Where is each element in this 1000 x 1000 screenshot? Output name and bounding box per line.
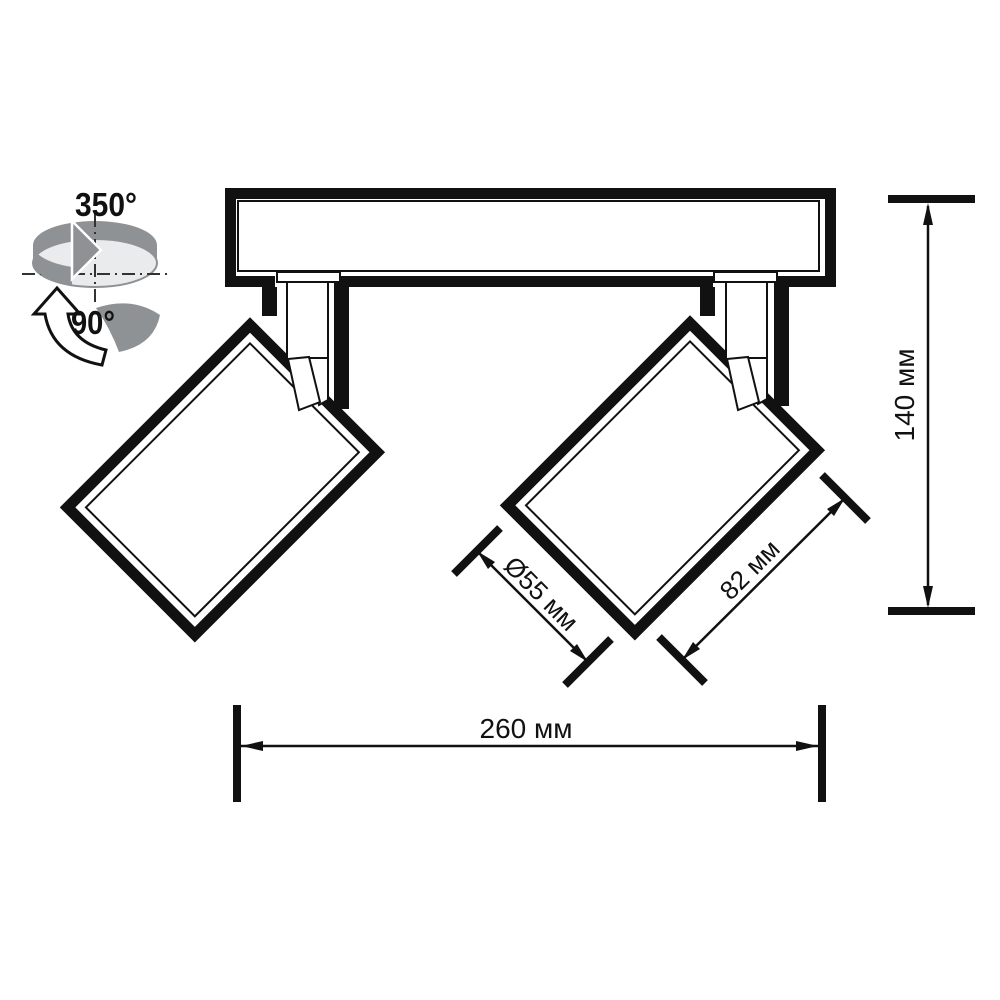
dim-height-arrow-down bbox=[923, 586, 933, 608]
left-stem-cap bbox=[277, 272, 340, 282]
rotation-tilt-icon: 350° 90° bbox=[22, 186, 168, 365]
dim-width-label: 260 мм bbox=[480, 713, 573, 744]
right-stem bbox=[726, 282, 767, 360]
dimension-drawing: 350° 90° bbox=[0, 0, 1000, 1000]
left-stem bbox=[287, 282, 328, 360]
right-stem-cap bbox=[714, 272, 777, 282]
mounting-bar-inner-line bbox=[238, 201, 819, 271]
right-yoke-arm bbox=[774, 287, 789, 406]
tilt-angle-label: 90° bbox=[71, 304, 115, 341]
left-yoke-arm bbox=[334, 287, 349, 409]
dim-height-label: 140 мм bbox=[889, 349, 920, 442]
drawing-svg: 350° 90° bbox=[0, 0, 1000, 1000]
dim-width: 260 мм bbox=[237, 705, 822, 802]
spotlight-fixture bbox=[68, 188, 836, 635]
dim-height: 140 мм bbox=[888, 199, 975, 611]
dim-width-arrow-right bbox=[796, 741, 818, 751]
left-spot-head bbox=[68, 325, 378, 635]
bar-step-right bbox=[700, 287, 715, 316]
rotation-angle-label: 350° bbox=[75, 186, 137, 223]
bar-step-left bbox=[262, 287, 277, 316]
dim-width-arrow-left bbox=[241, 741, 263, 751]
dim-height-arrow-up bbox=[923, 203, 933, 225]
